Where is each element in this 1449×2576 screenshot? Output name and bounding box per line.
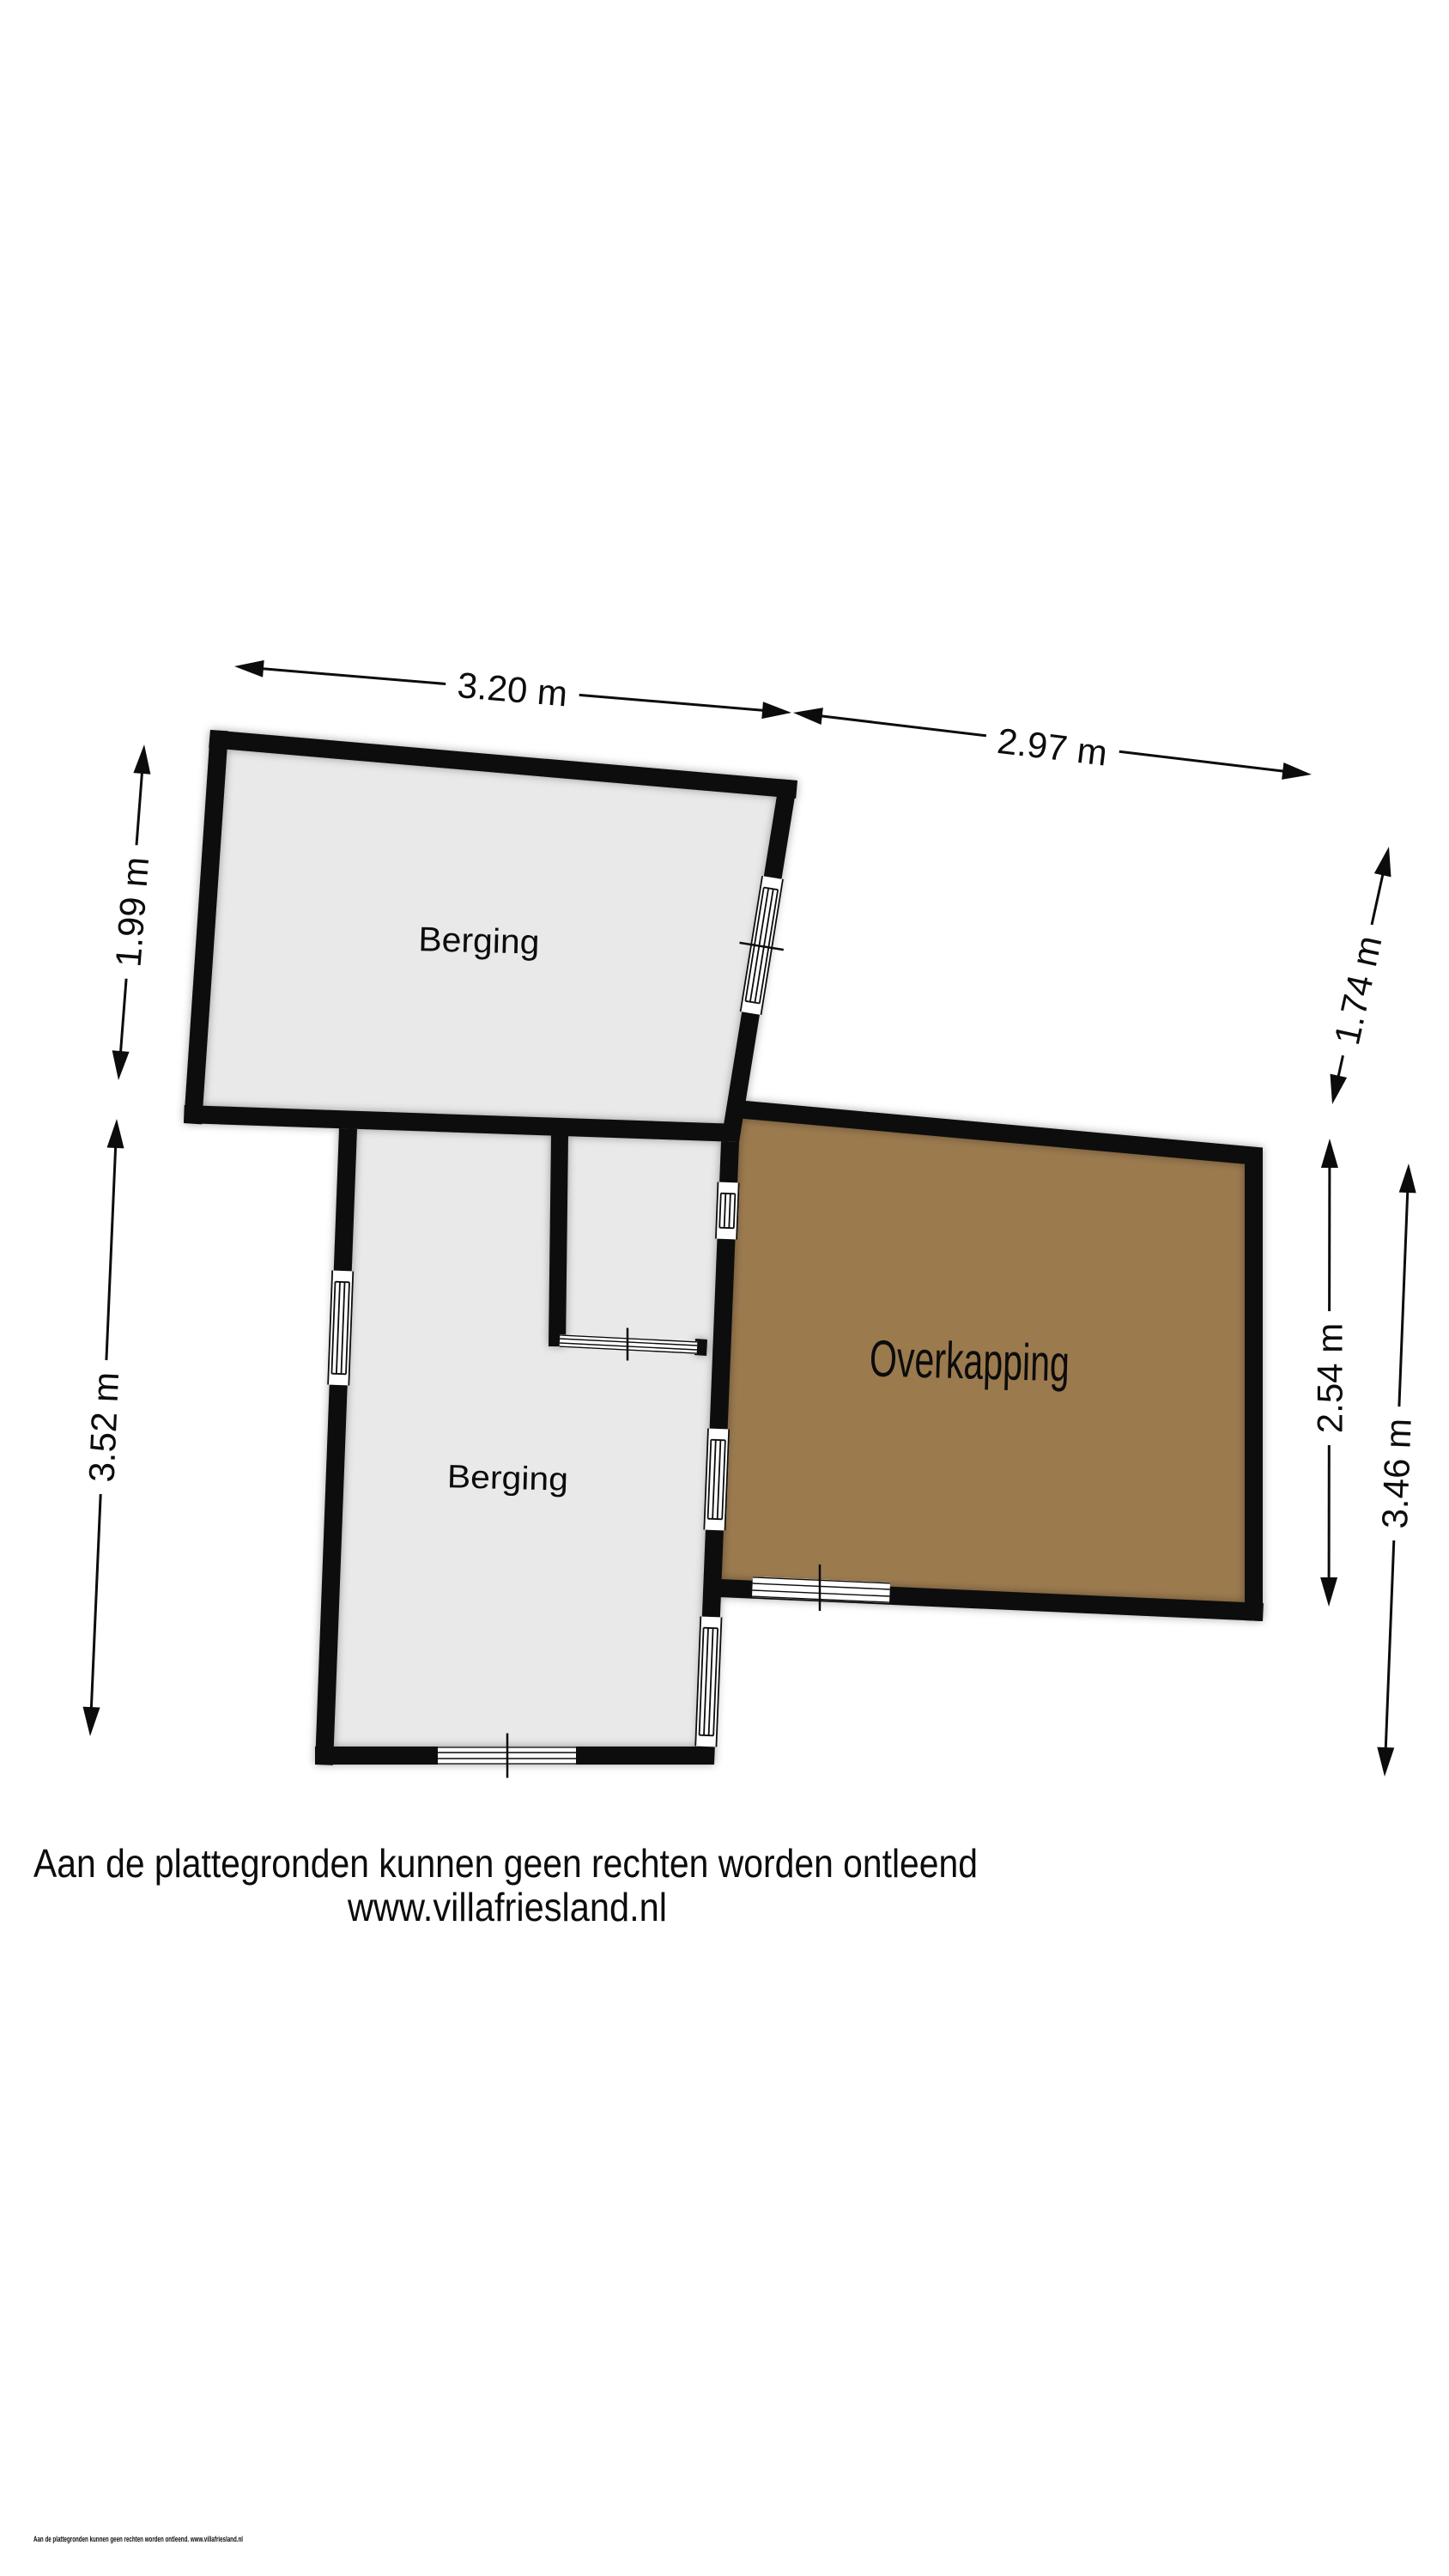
svg-text:1.99 m: 1.99 m (107, 855, 156, 969)
svg-text:3.52 m: 3.52 m (82, 1371, 127, 1483)
svg-text:Aan de plattegronden kunnen ge: Aan de plattegronden kunnen geen rechten… (33, 1841, 978, 1886)
svg-text:Berging: Berging (418, 920, 540, 962)
svg-text:Berging: Berging (446, 1459, 568, 1498)
svg-text:Overkapping: Overkapping (869, 1329, 1070, 1392)
svg-text:www.villafriesland.nl: www.villafriesland.nl (347, 1885, 667, 1929)
svg-text:3.46 m: 3.46 m (1374, 1418, 1419, 1529)
svg-text:2.54 m: 2.54 m (1309, 1323, 1349, 1433)
svg-text:Aan de plattegronden kunnen ge: Aan de plattegronden kunnen geen rechten… (33, 2535, 243, 2544)
